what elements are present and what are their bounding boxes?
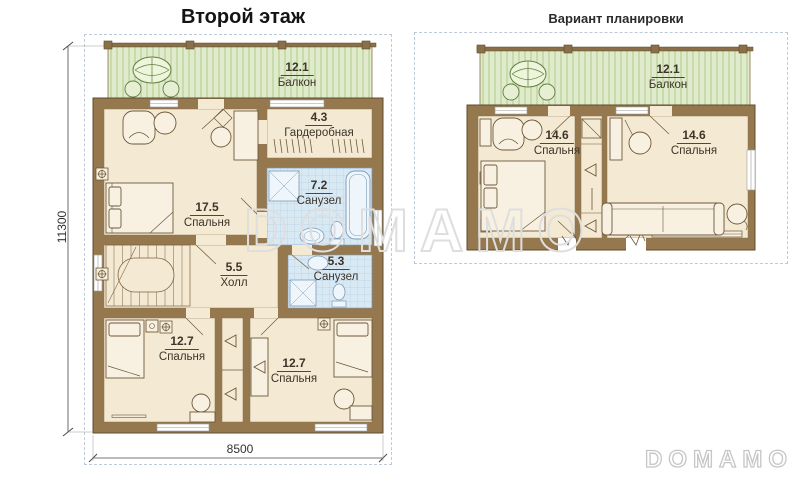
brand-logo: DOMAMO <box>644 446 794 474</box>
room-area: 4.3 <box>306 111 333 126</box>
variant-balcony <box>477 45 753 105</box>
room-name: Балкон <box>649 79 688 92</box>
dimension-width: 8500 <box>227 442 254 456</box>
room-area: 12.7 <box>277 357 310 372</box>
room-name: Гардеробная <box>284 127 354 140</box>
room-area: 14.6 <box>677 129 710 144</box>
main-balcony <box>104 41 376 98</box>
room-area: 12.1 <box>280 61 313 76</box>
variant-title: Вариант планировки <box>548 11 683 26</box>
main-plan <box>93 41 383 433</box>
room-name: Спальня <box>184 217 230 230</box>
dimension-height: 11300 <box>55 205 69 249</box>
room-label-bedroom-large: 17.5 Спальня <box>184 198 230 230</box>
room-area: 7.2 <box>306 179 333 194</box>
room-label-bedroom-bl: 12.7 Спальня <box>159 332 205 364</box>
room-name: Санузел <box>297 195 342 208</box>
room-label-balcony: 12.1 Балкон <box>278 58 317 90</box>
room-label-variant-bedroom-right: 14.6 Спальня <box>671 126 717 158</box>
room-name: Спальня <box>534 145 580 158</box>
page-title: Второй этаж <box>181 6 305 29</box>
room-area: 5.3 <box>323 255 350 270</box>
room-name: Балкон <box>278 77 317 90</box>
room-name: Спальня <box>159 351 205 364</box>
room-label-variant-balcony: 12.1 Балкон <box>649 60 688 92</box>
room-area: 12.1 <box>651 63 684 78</box>
room-area: 5.5 <box>221 261 248 276</box>
room-name: Спальня <box>671 145 717 158</box>
room-label-variant-bedroom-left: 14.6 Спальня <box>534 126 580 158</box>
room-label-hall: 5.5 Холл <box>220 258 247 290</box>
room-name: Санузел <box>314 271 359 284</box>
room-label-bedroom-br: 12.7 Спальня <box>271 354 317 386</box>
room-label-bathroom-top: 7.2 Санузел <box>297 176 342 208</box>
room-area: 14.6 <box>540 129 573 144</box>
floor-plan-page: DOMAMO Второй этаж Вариант планировки 12… <box>0 0 800 480</box>
room-name: Спальня <box>271 373 317 386</box>
room-area: 12.7 <box>165 335 198 350</box>
room-name: Холл <box>220 277 247 290</box>
room-area: 17.5 <box>190 201 223 216</box>
room-label-bathroom-bottom: 5.3 Санузел <box>314 252 359 284</box>
room-label-wardrobe: 4.3 Гардеробная <box>284 108 354 140</box>
